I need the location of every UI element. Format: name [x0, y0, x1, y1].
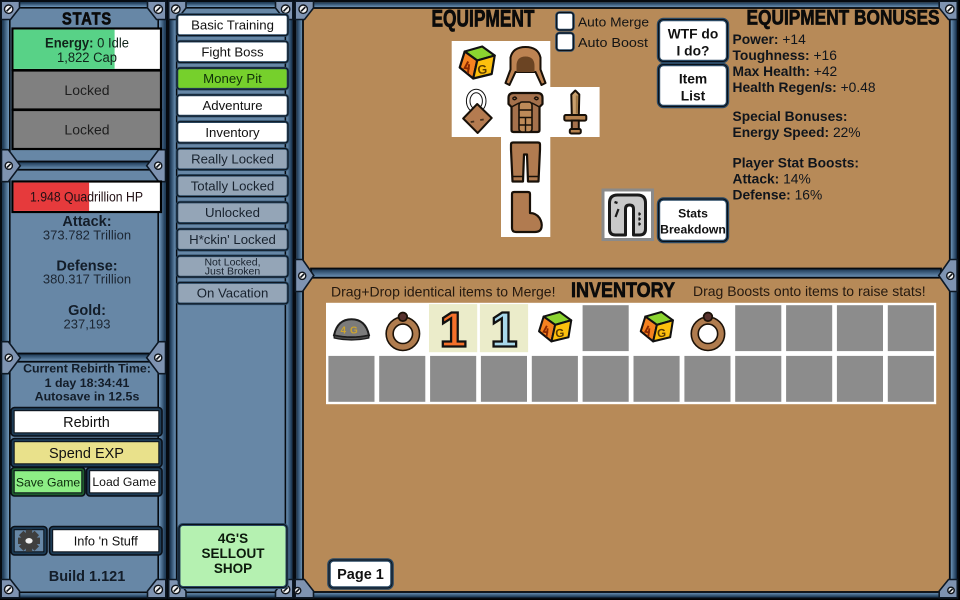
svg-text:STATS: STATS: [62, 9, 112, 29]
svg-text:H*ckin' Locked: H*ckin' Locked: [189, 232, 276, 247]
svg-text:Drag+Drop identical items to M: Drag+Drop identical items to Merge!: [331, 284, 556, 300]
svg-text:Max Health: +42: Max Health: +42: [733, 64, 838, 79]
svg-text:Breakdown: Breakdown: [660, 223, 726, 237]
svg-text:Toughness: +16: Toughness: +16: [733, 48, 838, 63]
svg-text:Build 1.121: Build 1.121: [49, 569, 126, 585]
svg-text:Item: Item: [679, 72, 707, 87]
svg-text:Adventure: Adventure: [202, 98, 262, 113]
svg-text:Just Broken: Just Broken: [205, 266, 261, 278]
svg-text:Defense: 16%: Defense: 16%: [733, 188, 823, 203]
svg-text:Locked: Locked: [64, 122, 109, 138]
svg-text:237,193: 237,193: [64, 317, 111, 332]
svg-text:380.317 Trillion: 380.317 Trillion: [43, 272, 131, 287]
svg-text:EQUIPMENT BONUSES: EQUIPMENT BONUSES: [747, 7, 940, 30]
svg-text:Player Stat Boosts:: Player Stat Boosts:: [733, 156, 860, 171]
svg-text:Power: +14: Power: +14: [733, 32, 807, 47]
svg-text:G: G: [657, 328, 667, 341]
svg-text:Energy: 0 Idle: Energy: 0 Idle: [45, 36, 129, 51]
svg-text:WTF do: WTF do: [668, 27, 719, 42]
svg-text:Attack: 14%: Attack: 14%: [733, 172, 811, 187]
svg-text:Load Game: Load Game: [92, 475, 156, 489]
svg-text:Energy Speed: 22%: Energy Speed: 22%: [733, 125, 861, 140]
svg-text:G: G: [555, 328, 565, 341]
svg-text:373.782 Trillion: 373.782 Trillion: [43, 228, 131, 243]
svg-text:1: 1: [491, 303, 518, 357]
svg-text:Autosave in 12.5s: Autosave in 12.5s: [35, 390, 140, 404]
svg-text:Locked: Locked: [64, 82, 109, 98]
svg-text:G: G: [350, 325, 358, 336]
svg-text:4G'S: 4G'S: [218, 531, 248, 546]
svg-text:Money Pit: Money Pit: [203, 71, 262, 86]
svg-text:Page 1: Page 1: [337, 567, 384, 583]
svg-text:Stats: Stats: [678, 207, 708, 221]
svg-text:Basic Training: Basic Training: [191, 18, 274, 33]
svg-text:Totally Locked: Totally Locked: [191, 178, 275, 193]
svg-text:SELLOUT: SELLOUT: [202, 546, 266, 561]
svg-text:Auto Merge: Auto Merge: [578, 15, 649, 30]
svg-text:Spend EXP: Spend EXP: [49, 446, 124, 462]
svg-text:Inventory: Inventory: [205, 125, 260, 140]
svg-text:Save Game: Save Game: [16, 476, 81, 490]
svg-text:SHOP: SHOP: [214, 561, 252, 576]
svg-text:On Vacation: On Vacation: [197, 286, 269, 301]
svg-text:Drag Boosts onto items to rais: Drag Boosts onto items to raise stats!: [693, 283, 926, 299]
svg-text:G: G: [477, 62, 488, 77]
svg-text:4: 4: [341, 325, 347, 336]
svg-text:Health Regen/s: +0.48: Health Regen/s: +0.48: [733, 80, 876, 95]
svg-text:Auto Boost: Auto Boost: [578, 35, 648, 50]
svg-text:List: List: [681, 89, 706, 104]
svg-text:Fight Boss: Fight Boss: [201, 44, 264, 59]
svg-text:INVENTORY: INVENTORY: [571, 279, 675, 302]
svg-text:Current Rebirth Time:: Current Rebirth Time:: [23, 362, 151, 376]
svg-text:1: 1: [440, 303, 467, 357]
svg-text:EQUIPMENT: EQUIPMENT: [432, 6, 535, 33]
svg-text:Rebirth: Rebirth: [63, 415, 110, 431]
svg-text:Unlocked: Unlocked: [205, 205, 260, 220]
svg-text:Really Locked: Really Locked: [191, 152, 274, 167]
svg-text:1.948 Quadrillion HP: 1.948 Quadrillion HP: [30, 189, 143, 205]
svg-text:1 day 18:34:41: 1 day 18:34:41: [45, 376, 130, 390]
svg-text:Special Bonuses:: Special Bonuses:: [733, 109, 848, 124]
svg-text:Info 'n Stuff: Info 'n Stuff: [74, 533, 139, 548]
svg-text:I do?: I do?: [677, 44, 710, 59]
svg-text:1,822 Cap: 1,822 Cap: [57, 50, 117, 65]
